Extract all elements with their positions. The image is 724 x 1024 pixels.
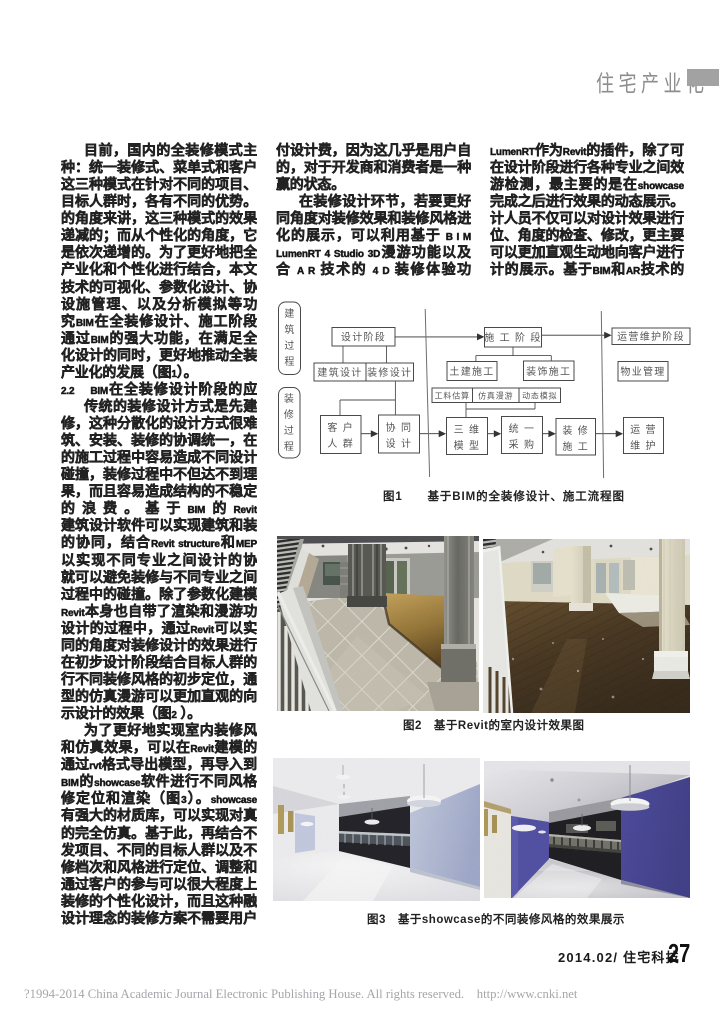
svg-text:施 工 阶 段: 施 工 阶 段 <box>484 331 541 344</box>
svg-text:土建施工: 土建施工 <box>449 365 494 378</box>
svg-text:三 维: 三 维 <box>454 423 481 436</box>
svg-text:程: 程 <box>284 441 295 453</box>
svg-text:人 群: 人 群 <box>327 437 354 450</box>
svg-text:物业管理: 物业管理 <box>620 365 665 378</box>
svg-text:装: 装 <box>284 392 295 405</box>
svg-text:过: 过 <box>284 339 295 352</box>
svg-text:运 营: 运 营 <box>630 423 657 436</box>
svg-text:客 户: 客 户 <box>327 421 354 434</box>
svg-text:动态模拟: 动态模拟 <box>522 391 557 401</box>
svg-text:协 同: 协 同 <box>386 421 413 434</box>
svg-text:工料估算: 工料估算 <box>435 391 470 401</box>
svg-text:装修设计: 装修设计 <box>367 366 412 379</box>
svg-text:装饰施工: 装饰施工 <box>526 365 571 378</box>
svg-text:模 型: 模 型 <box>454 439 481 452</box>
svg-text:采 购: 采 购 <box>509 438 536 451</box>
svg-text:施 工: 施 工 <box>562 440 589 453</box>
svg-text:装 修: 装 修 <box>562 424 589 437</box>
svg-text:设计阶段: 设计阶段 <box>341 331 386 344</box>
svg-text:建筑设计: 建筑设计 <box>317 366 362 379</box>
svg-text:运营维护阶段: 运营维护阶段 <box>617 330 685 343</box>
svg-text:修: 修 <box>284 408 295 421</box>
svg-text:设 计: 设 计 <box>386 437 413 450</box>
svg-text:建: 建 <box>284 307 295 320</box>
svg-text:程: 程 <box>284 356 295 368</box>
svg-text:维 护: 维 护 <box>630 439 657 452</box>
svg-text:筑: 筑 <box>284 323 295 336</box>
svg-text:仿真漫游: 仿真漫游 <box>478 391 513 401</box>
svg-text:统 一: 统 一 <box>509 422 536 435</box>
svg-text:过: 过 <box>284 424 295 437</box>
